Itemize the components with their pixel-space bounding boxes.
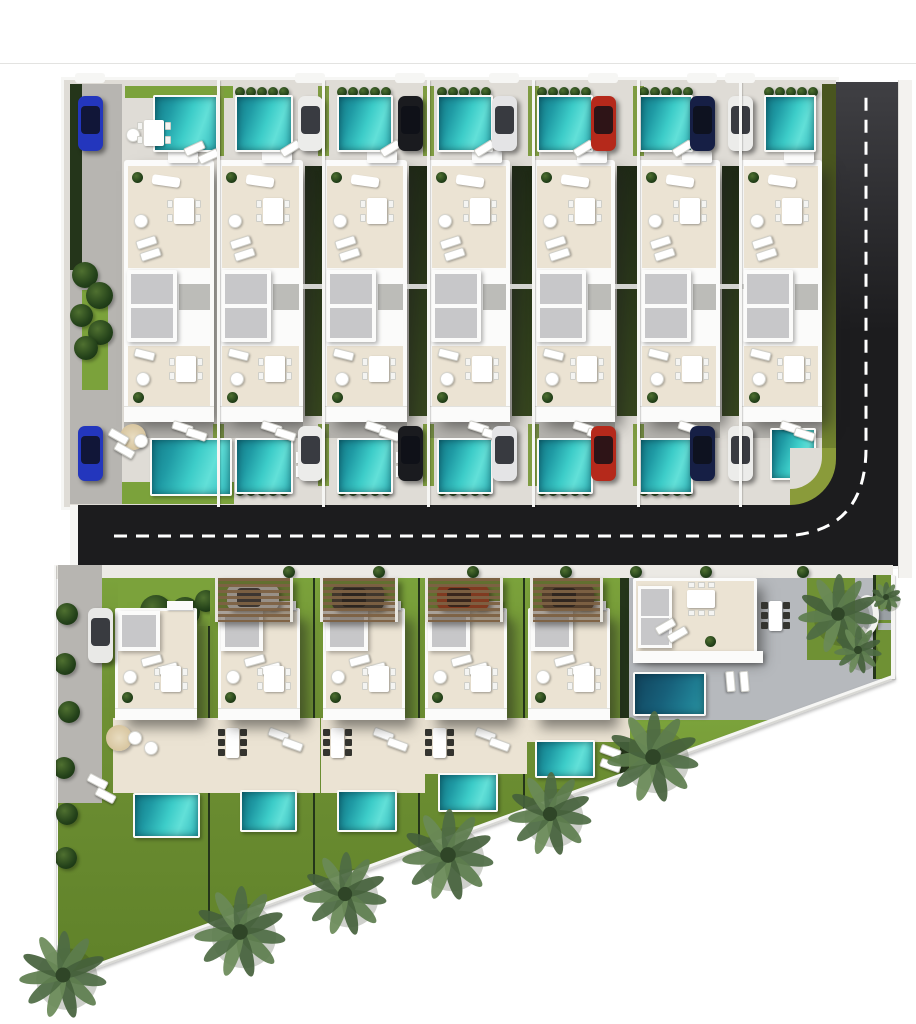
dining-set xyxy=(471,666,491,692)
chair xyxy=(698,610,705,616)
potted-plant-icon xyxy=(226,172,237,183)
chair xyxy=(568,200,574,208)
potted-plant-icon xyxy=(432,692,443,703)
chair xyxy=(701,214,707,222)
car-icon xyxy=(492,426,517,481)
potted-plant-icon xyxy=(132,172,143,183)
patio xyxy=(526,718,630,742)
car-icon xyxy=(298,96,323,151)
villa-building xyxy=(638,160,720,422)
villa-building xyxy=(115,608,197,720)
gap-hedge xyxy=(409,166,428,416)
skylight-panel xyxy=(747,274,789,304)
chair xyxy=(218,749,225,756)
chair xyxy=(195,214,201,222)
chair xyxy=(761,612,768,619)
potted-plant-icon xyxy=(535,692,546,703)
car-icon xyxy=(398,96,423,151)
sun-lounger xyxy=(725,671,736,693)
chair xyxy=(425,749,432,756)
skylight-panel xyxy=(330,308,372,338)
pergola xyxy=(425,578,503,622)
chair xyxy=(258,372,264,380)
chair xyxy=(596,200,602,208)
dining-set xyxy=(472,356,492,382)
dining-set xyxy=(782,198,802,224)
swimming-pool xyxy=(337,790,397,832)
chair xyxy=(240,739,247,746)
chair xyxy=(218,739,225,746)
round-table xyxy=(123,670,137,684)
car-glass xyxy=(301,436,320,464)
car-glass xyxy=(81,436,100,464)
chair xyxy=(360,214,366,222)
skylight-frame xyxy=(431,270,481,342)
chair xyxy=(390,372,396,380)
potted-plant-icon xyxy=(122,692,133,703)
swimming-pool xyxy=(639,438,693,494)
bush-icon xyxy=(373,566,385,578)
chair xyxy=(708,610,715,616)
curved-lounger xyxy=(855,595,879,635)
round-table xyxy=(136,372,150,386)
chair xyxy=(137,136,143,144)
potted-plant-icon xyxy=(436,172,447,183)
dining-set xyxy=(682,356,702,382)
chair xyxy=(362,682,368,690)
swimming-pool xyxy=(337,95,393,152)
potted-plant-icon xyxy=(331,172,342,183)
roof-walkway xyxy=(273,284,299,310)
chair xyxy=(783,622,790,629)
round-table xyxy=(230,372,244,386)
chair xyxy=(570,358,576,366)
chair xyxy=(197,372,203,380)
chair xyxy=(169,358,175,366)
gate-canopy xyxy=(295,73,325,83)
car-icon xyxy=(492,96,517,151)
dining-set xyxy=(369,356,389,382)
entry-canopy xyxy=(784,151,814,163)
chair xyxy=(137,122,143,130)
chair xyxy=(154,682,160,690)
chair xyxy=(323,749,330,756)
round-table xyxy=(335,372,349,386)
chair xyxy=(360,200,366,208)
chair xyxy=(465,372,471,380)
chair xyxy=(688,582,695,588)
patio-dining-set xyxy=(331,728,344,758)
car-icon xyxy=(78,96,103,151)
skylight-frame xyxy=(118,611,160,651)
dining-set xyxy=(784,356,804,382)
chair xyxy=(169,372,175,380)
skylight-panel xyxy=(122,615,156,647)
chair xyxy=(345,729,352,736)
chair xyxy=(197,358,203,366)
skylight-frame xyxy=(221,270,271,342)
chair xyxy=(388,200,394,208)
chair xyxy=(595,682,601,690)
chair xyxy=(257,682,263,690)
skylight-panel xyxy=(747,308,789,338)
car-glass xyxy=(301,106,320,134)
entry-canopy xyxy=(167,601,193,610)
round-table xyxy=(650,372,664,386)
chair xyxy=(803,200,809,208)
chair xyxy=(675,358,681,366)
round-table xyxy=(543,214,557,228)
chair xyxy=(323,729,330,736)
road-left-cap xyxy=(70,505,78,569)
swimming-pool xyxy=(537,438,593,494)
left-boundary-wall xyxy=(52,565,56,983)
chair xyxy=(703,358,709,366)
round-table xyxy=(128,731,142,745)
chair xyxy=(805,358,811,366)
chair xyxy=(167,214,173,222)
road-right-sidewalk xyxy=(898,80,912,578)
entry-canopy xyxy=(682,151,712,163)
potted-plant-icon xyxy=(227,392,238,403)
car-glass xyxy=(495,106,514,134)
chair xyxy=(286,372,292,380)
chair xyxy=(761,602,768,609)
roof-walkway xyxy=(588,284,611,310)
patio-dining-set xyxy=(769,601,782,631)
chair xyxy=(567,682,573,690)
chair xyxy=(182,682,188,690)
parapet xyxy=(323,406,407,422)
potted-plant-icon xyxy=(646,172,657,183)
skylight-frame xyxy=(743,270,793,342)
chair xyxy=(493,358,499,366)
villa-building xyxy=(740,160,822,422)
skylight-frame xyxy=(641,270,691,342)
dining-set xyxy=(574,666,594,692)
skylight-panel xyxy=(540,274,582,304)
pergola xyxy=(530,578,603,622)
dining-set xyxy=(575,198,595,224)
chair xyxy=(390,358,396,366)
site-plan-canvas xyxy=(0,0,916,1024)
dining-set xyxy=(144,120,164,146)
patio-dining-set xyxy=(226,728,239,758)
bush-icon xyxy=(70,304,93,327)
bush-icon xyxy=(467,566,479,578)
chair xyxy=(240,729,247,736)
swimming-pool xyxy=(337,438,393,494)
gate-canopy xyxy=(588,73,618,83)
skylight-panel xyxy=(540,308,582,338)
lot-wall xyxy=(739,80,742,507)
potted-plant-icon xyxy=(330,692,341,703)
gate-canopy xyxy=(75,73,105,83)
swimming-pool xyxy=(133,793,200,838)
chair xyxy=(567,668,573,676)
potted-plant-icon xyxy=(225,692,236,703)
round-table xyxy=(536,670,550,684)
parapet xyxy=(218,406,303,422)
bush-icon xyxy=(56,603,78,625)
dining-set xyxy=(176,356,196,382)
chair xyxy=(492,668,498,676)
swimming-pool xyxy=(240,790,297,832)
gate-canopy xyxy=(687,73,717,83)
potted-plant-icon xyxy=(705,636,716,647)
gate-canopy xyxy=(395,73,425,83)
chair xyxy=(491,200,497,208)
chair xyxy=(258,358,264,366)
parapet xyxy=(533,406,615,422)
car-icon xyxy=(690,96,715,151)
chair xyxy=(688,610,695,616)
skylight-panel xyxy=(131,274,173,304)
chair xyxy=(703,372,709,380)
sun-lounger xyxy=(281,737,304,753)
skylight-panel xyxy=(330,274,372,304)
chair xyxy=(345,739,352,746)
villa-building xyxy=(124,160,214,422)
gate-canopy xyxy=(725,73,755,83)
potted-plant-icon xyxy=(542,392,553,403)
chair xyxy=(362,372,368,380)
parapet xyxy=(115,708,197,720)
villa-building xyxy=(218,160,303,422)
corner-white-band xyxy=(633,651,763,663)
chair xyxy=(595,668,601,676)
chair xyxy=(256,214,262,222)
round-table xyxy=(134,434,148,448)
skylight-panel xyxy=(435,308,477,338)
palm-lawn xyxy=(807,578,855,660)
round-table xyxy=(333,214,347,228)
parapet xyxy=(528,708,610,720)
car-icon xyxy=(398,426,423,481)
lot-wall xyxy=(532,80,535,507)
car-icon xyxy=(690,426,715,481)
potted-plant-icon xyxy=(748,172,759,183)
gate-canopy xyxy=(489,73,519,83)
car-icon xyxy=(78,426,103,481)
parapet xyxy=(425,708,507,720)
bush-icon xyxy=(56,803,78,825)
chair xyxy=(285,668,291,676)
bush-icon xyxy=(797,566,809,578)
swimming-pool xyxy=(235,438,293,494)
parapet xyxy=(638,406,720,422)
chair xyxy=(286,358,292,366)
gap-hedge xyxy=(512,166,533,416)
chair xyxy=(783,612,790,619)
road-horizontal xyxy=(78,505,898,568)
chair xyxy=(240,749,247,756)
lot-wall xyxy=(427,80,430,507)
pergola xyxy=(320,578,398,622)
potted-plant-icon xyxy=(541,172,552,183)
upper-parcel xyxy=(64,80,836,507)
dining-set xyxy=(174,198,194,224)
chair xyxy=(701,200,707,208)
lot-wall xyxy=(322,80,325,507)
chair xyxy=(493,372,499,380)
skylight-panel xyxy=(641,589,669,616)
round-table xyxy=(752,372,766,386)
round-table xyxy=(331,670,345,684)
chair xyxy=(323,739,330,746)
chair xyxy=(463,200,469,208)
corner-villa-building xyxy=(633,578,757,658)
roof-walkway xyxy=(693,284,716,310)
patio xyxy=(423,718,527,774)
skylight-frame xyxy=(127,270,177,342)
patio xyxy=(321,718,425,793)
chair xyxy=(761,622,768,629)
chair xyxy=(284,214,290,222)
potted-plant-icon xyxy=(647,392,658,403)
skylight-frame xyxy=(326,270,376,342)
chair xyxy=(775,214,781,222)
lot-wall xyxy=(637,80,640,507)
villa-building xyxy=(218,608,300,720)
swimming-pool xyxy=(235,95,293,152)
parapet xyxy=(124,406,214,422)
chair xyxy=(673,200,679,208)
patio xyxy=(216,718,320,793)
dining-set xyxy=(367,198,387,224)
parapet xyxy=(218,708,300,720)
chair xyxy=(257,668,263,676)
chair xyxy=(345,749,352,756)
chair xyxy=(491,214,497,222)
chair xyxy=(447,749,454,756)
car-glass xyxy=(91,618,110,646)
parapet xyxy=(428,406,510,422)
chair xyxy=(425,739,432,746)
pergola xyxy=(215,578,293,622)
chair xyxy=(598,358,604,366)
roof-walkway xyxy=(179,284,210,310)
chair xyxy=(708,582,715,588)
car-icon xyxy=(88,608,113,663)
chair xyxy=(673,214,679,222)
villa-building xyxy=(428,160,510,422)
chair xyxy=(568,214,574,222)
car-glass xyxy=(693,436,712,464)
right-boundary-wall xyxy=(891,575,895,679)
car-glass xyxy=(495,436,514,464)
round-table xyxy=(134,214,148,228)
chair xyxy=(464,668,470,676)
chair xyxy=(492,682,498,690)
chair xyxy=(284,200,290,208)
swimming-pool xyxy=(438,773,498,812)
roof-walkway xyxy=(795,284,818,310)
landscape-feature xyxy=(822,84,836,502)
chair xyxy=(463,214,469,222)
swimming-pool xyxy=(535,740,595,778)
car-icon xyxy=(298,426,323,481)
dining-set xyxy=(577,356,597,382)
villa-building xyxy=(528,608,610,720)
chair xyxy=(777,358,783,366)
car-icon xyxy=(591,96,616,151)
chair xyxy=(390,682,396,690)
chair xyxy=(698,582,705,588)
round-table xyxy=(750,214,764,228)
chair xyxy=(390,668,396,676)
round-table xyxy=(440,372,454,386)
bush-icon xyxy=(58,701,80,723)
dining-set xyxy=(265,356,285,382)
car-glass xyxy=(693,106,712,134)
chair xyxy=(805,372,811,380)
round-table xyxy=(144,741,158,755)
potted-plant-icon xyxy=(437,392,448,403)
round-table xyxy=(648,214,662,228)
chair xyxy=(256,200,262,208)
car-glass xyxy=(594,436,613,464)
chair xyxy=(388,214,394,222)
roof-walkway xyxy=(378,284,403,310)
dining-set xyxy=(161,666,181,692)
chair xyxy=(775,200,781,208)
villa-building xyxy=(533,160,615,422)
chair xyxy=(165,136,171,144)
sun-lounger xyxy=(488,737,511,753)
dining-set xyxy=(470,198,490,224)
patio-dining-set xyxy=(433,728,446,758)
survey-line xyxy=(0,63,916,64)
car-glass xyxy=(401,106,420,134)
swimming-pool xyxy=(437,438,493,494)
parapet xyxy=(323,708,405,720)
round-table xyxy=(545,372,559,386)
round-table xyxy=(438,214,452,228)
bush-icon xyxy=(560,566,572,578)
round-table xyxy=(228,214,242,228)
villa-building xyxy=(323,160,407,422)
skylight-panel xyxy=(645,274,687,304)
swimming-pool xyxy=(764,95,816,152)
roof-walkway xyxy=(483,284,506,310)
skylight-panel xyxy=(225,274,267,304)
chair xyxy=(447,729,454,736)
villa-building xyxy=(425,608,507,720)
chair xyxy=(447,739,454,746)
bush-icon xyxy=(54,653,76,675)
chair xyxy=(285,682,291,690)
car-glass xyxy=(401,436,420,464)
dining-set xyxy=(369,666,389,692)
chair xyxy=(464,682,470,690)
villa-building xyxy=(323,608,405,720)
bush-icon xyxy=(74,336,98,360)
sun-lounger xyxy=(386,737,409,753)
parapet xyxy=(740,406,822,422)
potted-plant-icon xyxy=(749,392,760,403)
dining-set xyxy=(263,198,283,224)
dining-set-6 xyxy=(687,590,715,608)
dining-set xyxy=(680,198,700,224)
skylight-frame xyxy=(536,270,586,342)
sun-lounger xyxy=(739,671,750,693)
chair xyxy=(596,214,602,222)
car-glass xyxy=(594,106,613,134)
gap-hedge xyxy=(305,166,323,416)
road-light-patch xyxy=(836,82,898,332)
chair xyxy=(777,372,783,380)
